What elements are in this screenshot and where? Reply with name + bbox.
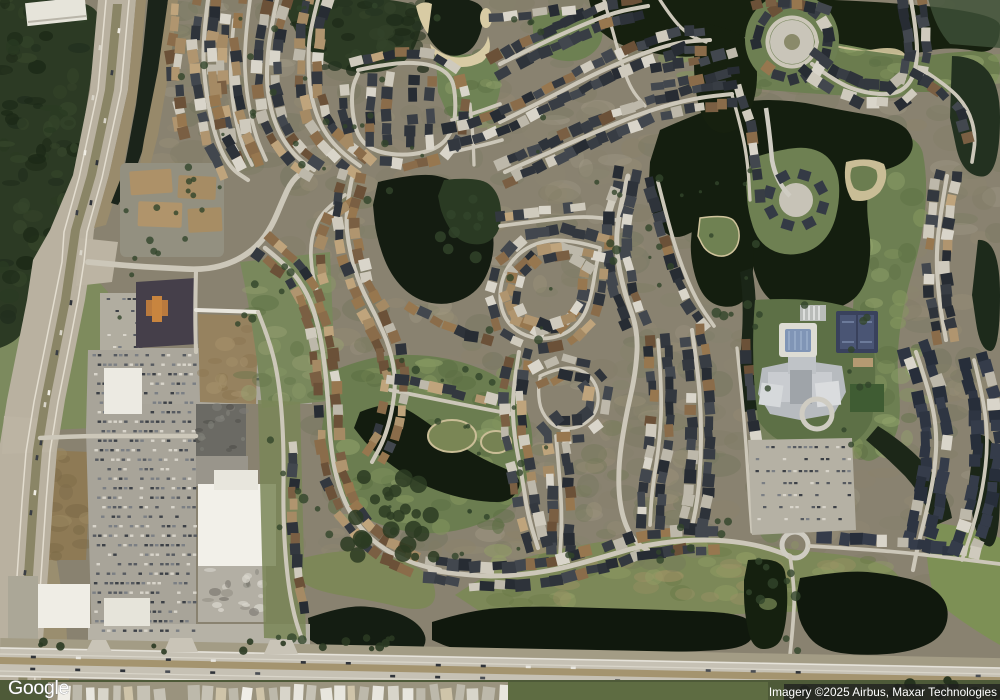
svg-text:Google: Google bbox=[8, 677, 69, 699]
svg-text:Imagery ©2025 Airbus, Maxar Te: Imagery ©2025 Airbus, Maxar Technologies bbox=[769, 685, 997, 699]
